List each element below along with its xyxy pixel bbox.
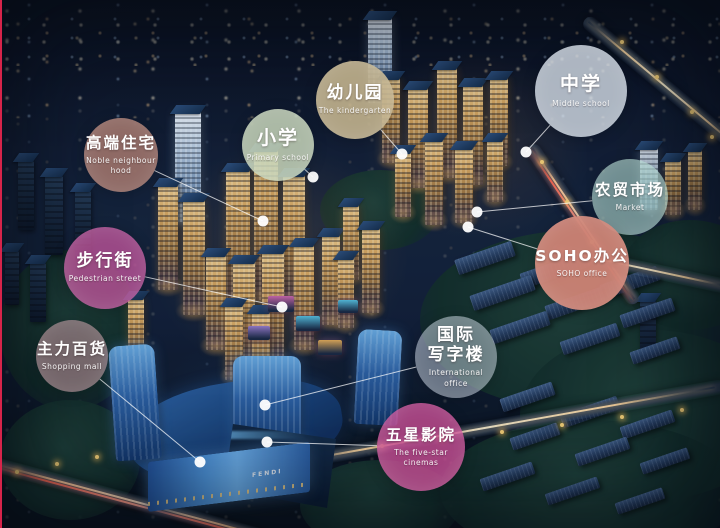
leader-line-soho-office (468, 227, 537, 249)
facility-label-en: Primary school (247, 153, 309, 163)
location-dot-pedestrian-street (277, 302, 288, 313)
facility-bubble-kindergarten: 幼儿园The kindergarten (316, 61, 394, 139)
facility-bubble-five-star-cinema: 五星影院The five-star cinemas (377, 403, 465, 491)
facility-bubble-primary-school: 小学Primary school (242, 109, 314, 181)
location-dot-kindergarten (397, 149, 408, 160)
location-dot-soho-office (463, 222, 474, 233)
leader-line-international-office (265, 367, 416, 405)
facility-label-en: International office (429, 368, 483, 388)
facility-label-zh: 幼儿园 (327, 83, 384, 103)
leader-line-five-star-cinema (267, 442, 377, 446)
leader-line-department-store (100, 379, 200, 462)
facility-label-zh: 五星影院 (386, 426, 456, 444)
location-dot-farmers-market (472, 207, 483, 218)
facility-label-en: Noble neighbour hood (84, 156, 158, 176)
facility-label-zh: 步行街 (77, 251, 134, 271)
facility-label-en: Market (616, 203, 645, 213)
facility-label-en: SOHO office (557, 269, 608, 279)
facility-bubble-soho-office: SOHO办公SOHO office (535, 216, 629, 310)
facility-label-en: The five-star cinemas (377, 448, 465, 468)
location-dot-five-star-cinema (262, 437, 273, 448)
facility-bubble-department-store: 主力百货Shopping mall (36, 320, 108, 392)
location-dot-department-store (195, 457, 206, 468)
leader-line-farmers-market (477, 201, 592, 212)
location-dot-primary-school (308, 172, 319, 183)
facility-label-zh: 高端住宅 (86, 134, 156, 152)
leader-line-noble-residence (155, 171, 263, 221)
facility-bubble-pedestrian-street: 步行街Pedestrian street (64, 227, 146, 309)
location-dot-noble-residence (258, 216, 269, 227)
leader-line-pedestrian-street (145, 277, 282, 307)
facility-bubble-international-office: 国际 写字楼International office (415, 316, 497, 398)
facility-label-zh: 国际 写字楼 (428, 325, 485, 365)
facility-label-en: Middle school (552, 99, 610, 109)
facility-label-en: Shopping mall (42, 362, 102, 372)
facility-bubble-middle-school: 中学Middle school (535, 45, 627, 137)
facility-label-zh: 中学 (560, 73, 602, 95)
facility-label-zh: 主力百货 (37, 340, 107, 358)
location-dot-middle-school (521, 147, 532, 158)
facility-label-zh: 农贸市场 (595, 181, 665, 199)
masterplan-rendering: FENDI 高端住宅Noble neighbour hood小学Primary … (0, 0, 720, 528)
facility-label-zh: 小学 (257, 127, 299, 149)
facility-label-zh: SOHO办公 (535, 247, 629, 265)
facility-bubble-noble-residence: 高端住宅Noble neighbour hood (84, 118, 158, 192)
location-dot-international-office (260, 400, 271, 411)
facility-label-en: Pedestrian street (69, 274, 141, 284)
facility-label-en: The kindergarten (319, 106, 392, 116)
left-border-line (0, 0, 2, 528)
